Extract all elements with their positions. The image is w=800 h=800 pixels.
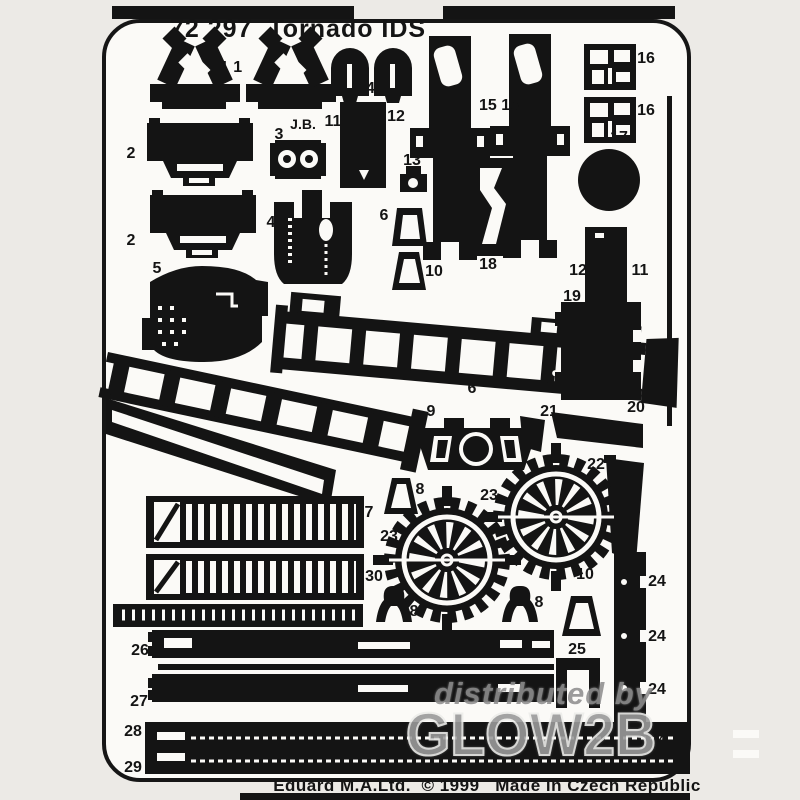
part-number-label: 6	[380, 208, 389, 224]
part-number-label: 12	[387, 109, 405, 125]
part-12-plate	[585, 227, 627, 303]
part-number-label: 12	[569, 263, 587, 279]
copyright-text: Eduard M.A.Ltd. © 1999 Made in Czech Rep…	[273, 776, 701, 796]
part-19-plate	[555, 302, 641, 400]
part-number-label: 3	[275, 127, 284, 143]
part-18-bracket	[464, 158, 516, 256]
part-number-label: 22	[587, 457, 605, 473]
part-number-label: 11	[325, 114, 342, 130]
part-number-label: 28	[124, 724, 142, 740]
part-number-label: 16	[637, 51, 655, 67]
part-number-label: J.B.	[290, 117, 316, 131]
part-number-label: 10	[425, 264, 443, 280]
part-number-label: 4	[267, 215, 276, 231]
part-11-plate	[340, 102, 386, 188]
part-number-label: 27	[130, 694, 148, 710]
part-5-bulkhead	[142, 266, 268, 362]
part-number-label: 9	[427, 404, 436, 420]
part-number-label: 23	[480, 488, 498, 504]
part-number-label: 8	[535, 595, 544, 611]
part-16-upper	[584, 44, 636, 90]
part-number-label: 1 1	[220, 60, 242, 76]
part-number-label: 24	[648, 574, 666, 590]
watermark-glow2b: GLOW2B	[406, 700, 656, 769]
part-number-label: 21	[540, 404, 558, 420]
part-number-label: 8	[410, 604, 419, 620]
part-number-label: 17	[610, 130, 628, 146]
part-number-label: 26	[131, 643, 149, 659]
part-4-seat	[274, 190, 352, 284]
part-number-label: 25	[568, 642, 586, 658]
part-number-label: 18	[479, 257, 497, 273]
part-6-small-frame	[392, 208, 427, 246]
part-number-label: 2	[127, 233, 136, 249]
part-number-label: 29	[124, 760, 142, 776]
part-number-label: 15 15	[479, 98, 519, 114]
part-number-label: 11	[632, 263, 649, 279]
part-3-plate	[270, 140, 326, 179]
part-number-label: 6	[468, 381, 477, 397]
part-number-label: 5	[153, 261, 162, 277]
part-7-30-grille	[113, 496, 364, 627]
part-number-label: 16	[637, 103, 655, 119]
part-17-disc	[578, 149, 640, 211]
part-number-label: 24	[648, 629, 666, 645]
photo-etch-sheet-photo: 72 297 Tornado IDS 1 11415 15161617J.B.3…	[0, 0, 800, 800]
part-number-label: 13	[403, 153, 421, 169]
part-number-label: 23	[380, 529, 398, 545]
part-number-label: 19	[563, 289, 581, 305]
part-14-dome-right	[374, 48, 412, 103]
part-number-label: 14	[357, 81, 375, 97]
part-number-label: 8	[416, 482, 425, 498]
part-number-label: 20	[627, 400, 645, 416]
part-number-label: 7	[365, 505, 374, 521]
part-number-label: 10	[576, 567, 594, 583]
sheet-title: 72 297 Tornado IDS	[170, 15, 426, 44]
part-number-label: 30	[365, 569, 383, 585]
part-number-label: 2	[127, 146, 136, 162]
